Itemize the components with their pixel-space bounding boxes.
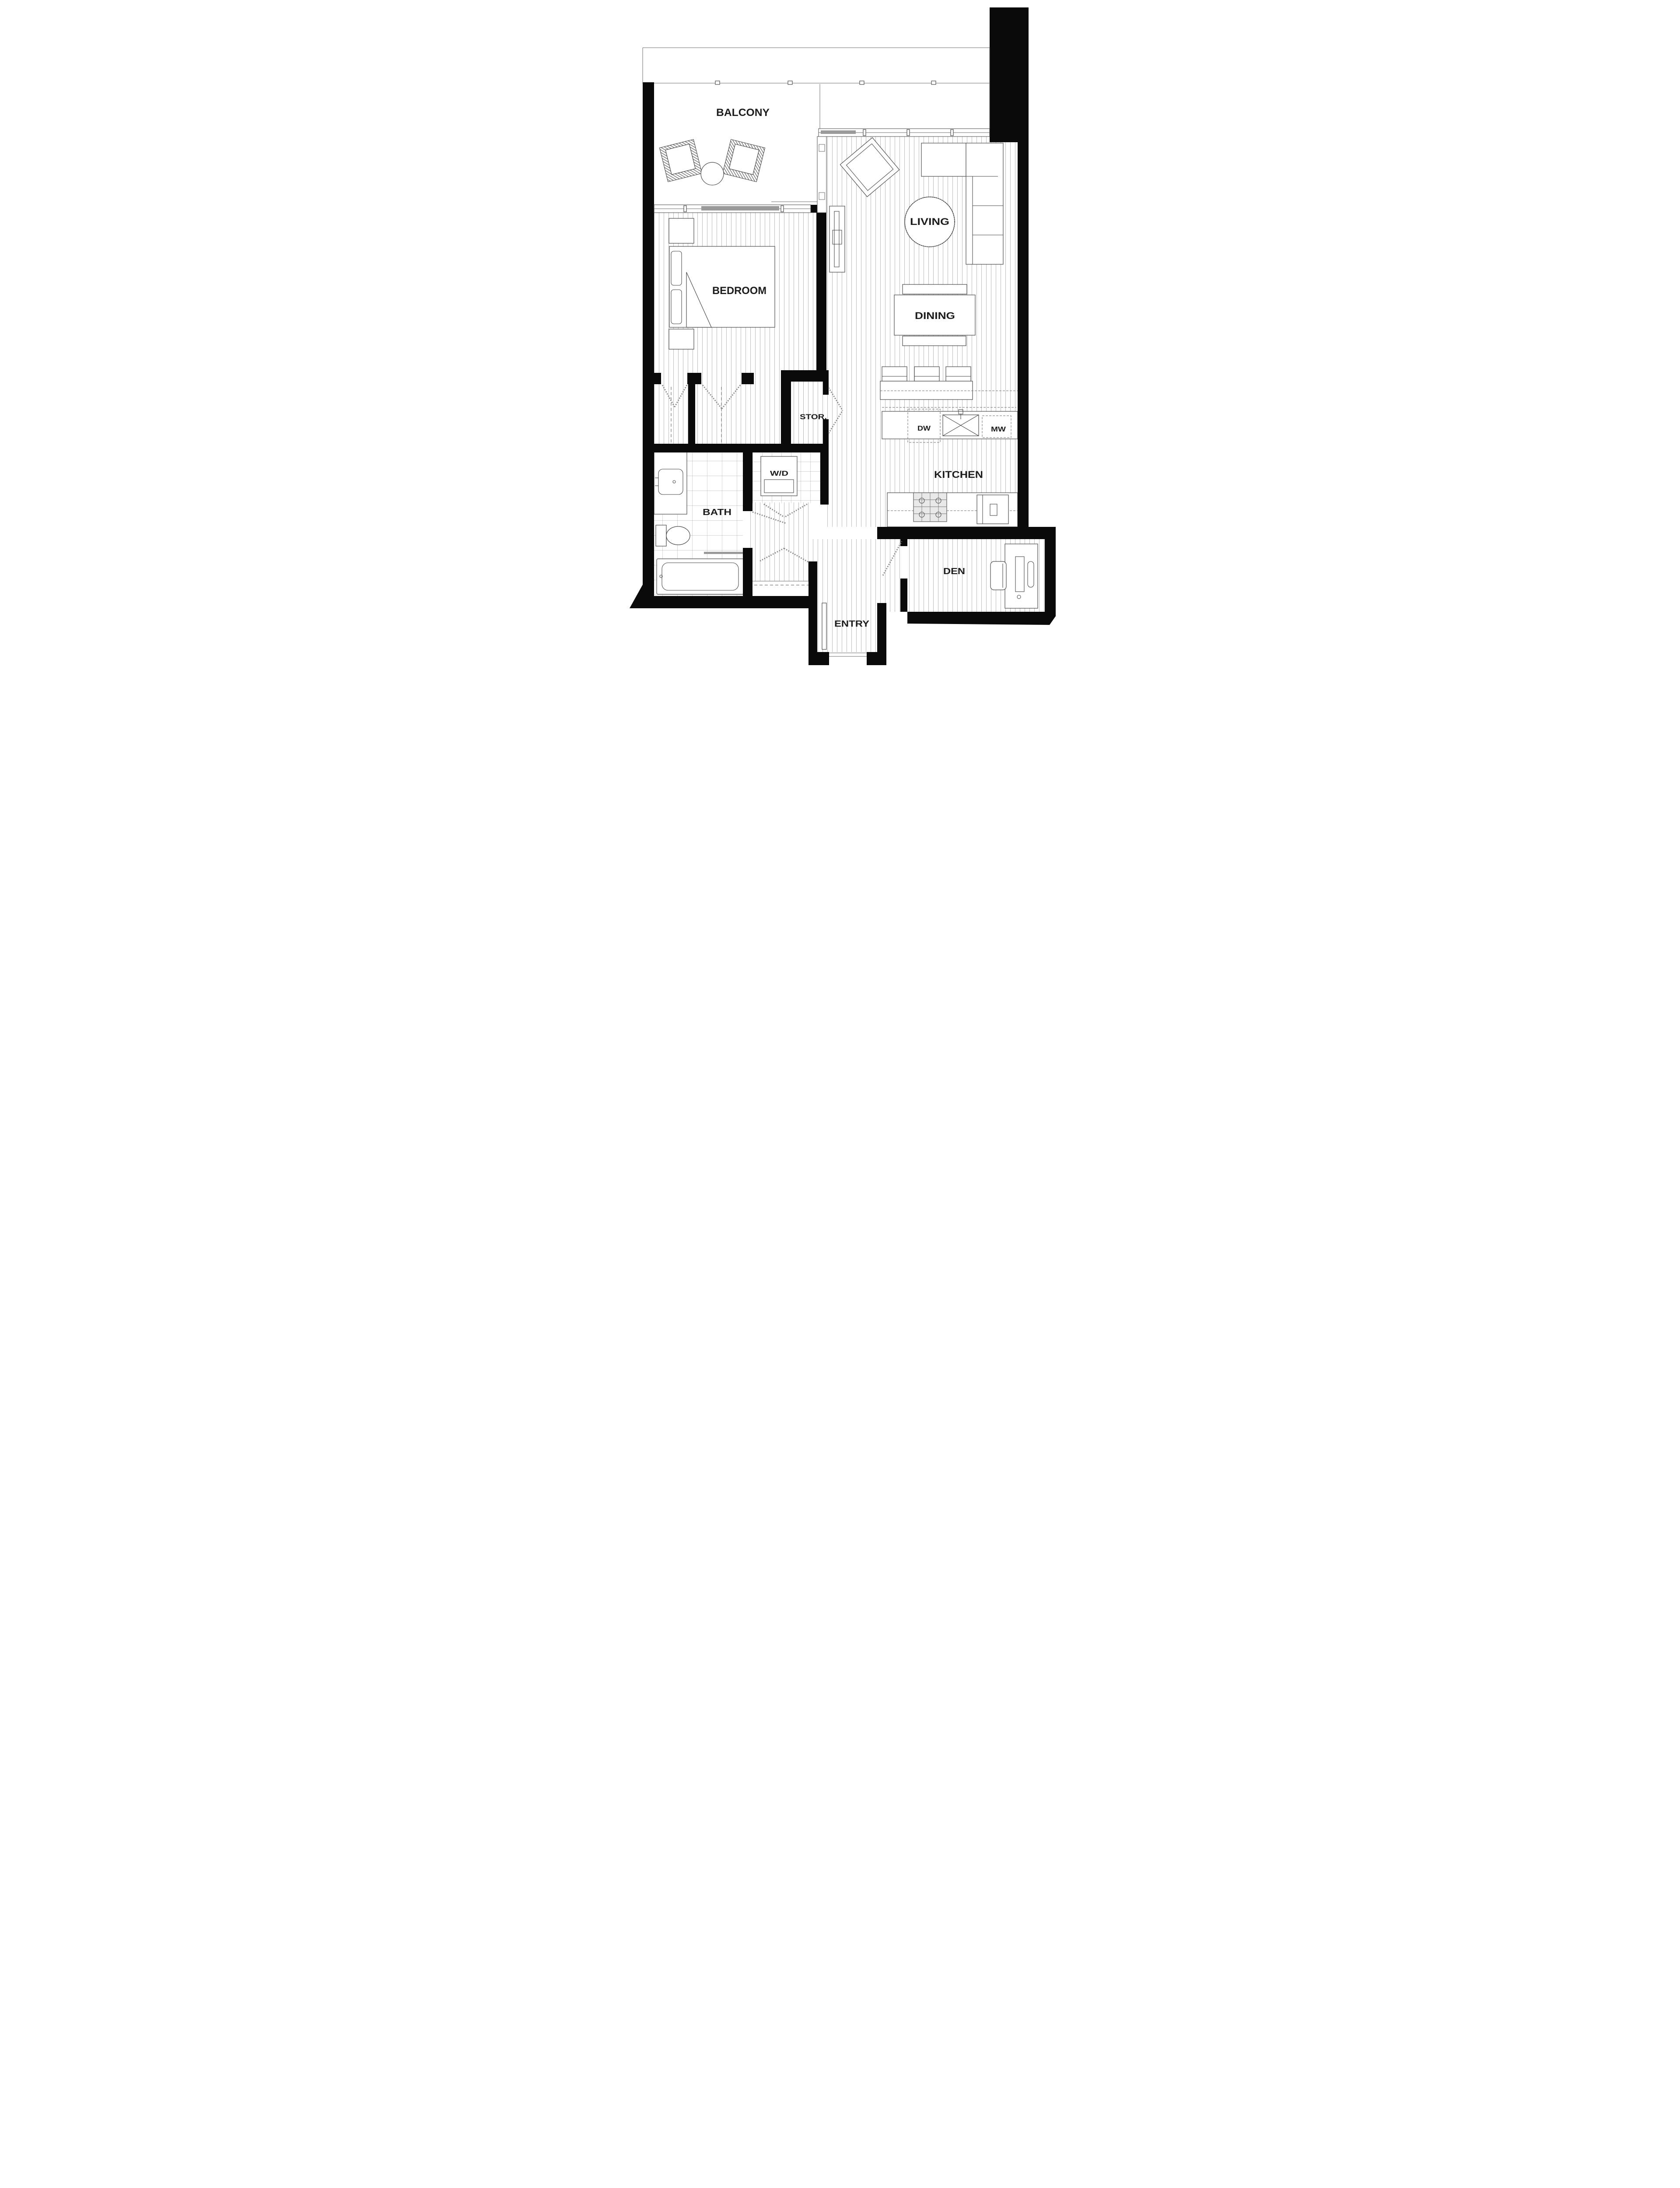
- bedroom-window: [654, 205, 811, 213]
- desk-chair: [990, 561, 1006, 590]
- bathtub: [657, 559, 744, 594]
- label-living: LIVING: [910, 216, 949, 227]
- living-window: [819, 129, 990, 137]
- vanity-counter: [654, 452, 687, 514]
- entry-door-leaf: [822, 603, 826, 649]
- label-dining: DINING: [915, 310, 955, 321]
- floor-plan-page: BALCONY LIVING BEDROOM DINING KITCHEN ST…: [618, 0, 1062, 674]
- balcony-chair-right: [722, 140, 765, 182]
- stove: [913, 493, 947, 522]
- towel-bar: [704, 552, 744, 554]
- den-bottom-wall: [907, 612, 1056, 625]
- sliding-door-panel: [821, 130, 856, 134]
- balcony-table: [701, 162, 724, 185]
- core-block: [990, 7, 1029, 142]
- label-balcony: BALCONY: [716, 107, 770, 119]
- balcony-chair-left: [659, 140, 702, 182]
- media-unit: [829, 206, 845, 272]
- sofa-body: [966, 143, 1003, 264]
- label-bath: BATH: [703, 508, 731, 517]
- label-den: DEN: [943, 567, 965, 576]
- label-storage: STOR.: [800, 413, 827, 421]
- label-entry: ENTRY: [834, 619, 870, 629]
- bar-stools: [882, 367, 971, 381]
- dining-bench-top: [903, 284, 967, 294]
- window-jamb: [817, 137, 826, 213]
- label-microwave: MW: [991, 426, 1006, 433]
- desk: [1005, 544, 1038, 608]
- corner-bevel-left: [630, 585, 643, 608]
- toilet: [656, 525, 690, 546]
- floor-plan-drawing: BALCONY LIVING BEDROOM DINING KITCHEN ST…: [618, 0, 1062, 674]
- label-bedroom: BEDROOM: [712, 285, 766, 297]
- sofa-chaise: [921, 143, 966, 176]
- label-kitchen: KITCHEN: [934, 469, 983, 480]
- label-dishwasher: DW: [917, 425, 931, 432]
- entry-floor: [808, 539, 877, 652]
- balcony-furniture: [659, 140, 765, 185]
- nightstand-bottom: [669, 329, 694, 349]
- fridge: [977, 495, 1008, 524]
- bedroom-sliding-panel: [701, 206, 779, 210]
- dining-bench-bottom: [903, 336, 966, 346]
- label-washer-dryer: W/D: [770, 470, 788, 477]
- kitchen-island: [880, 381, 973, 400]
- nightstand-top: [669, 218, 694, 243]
